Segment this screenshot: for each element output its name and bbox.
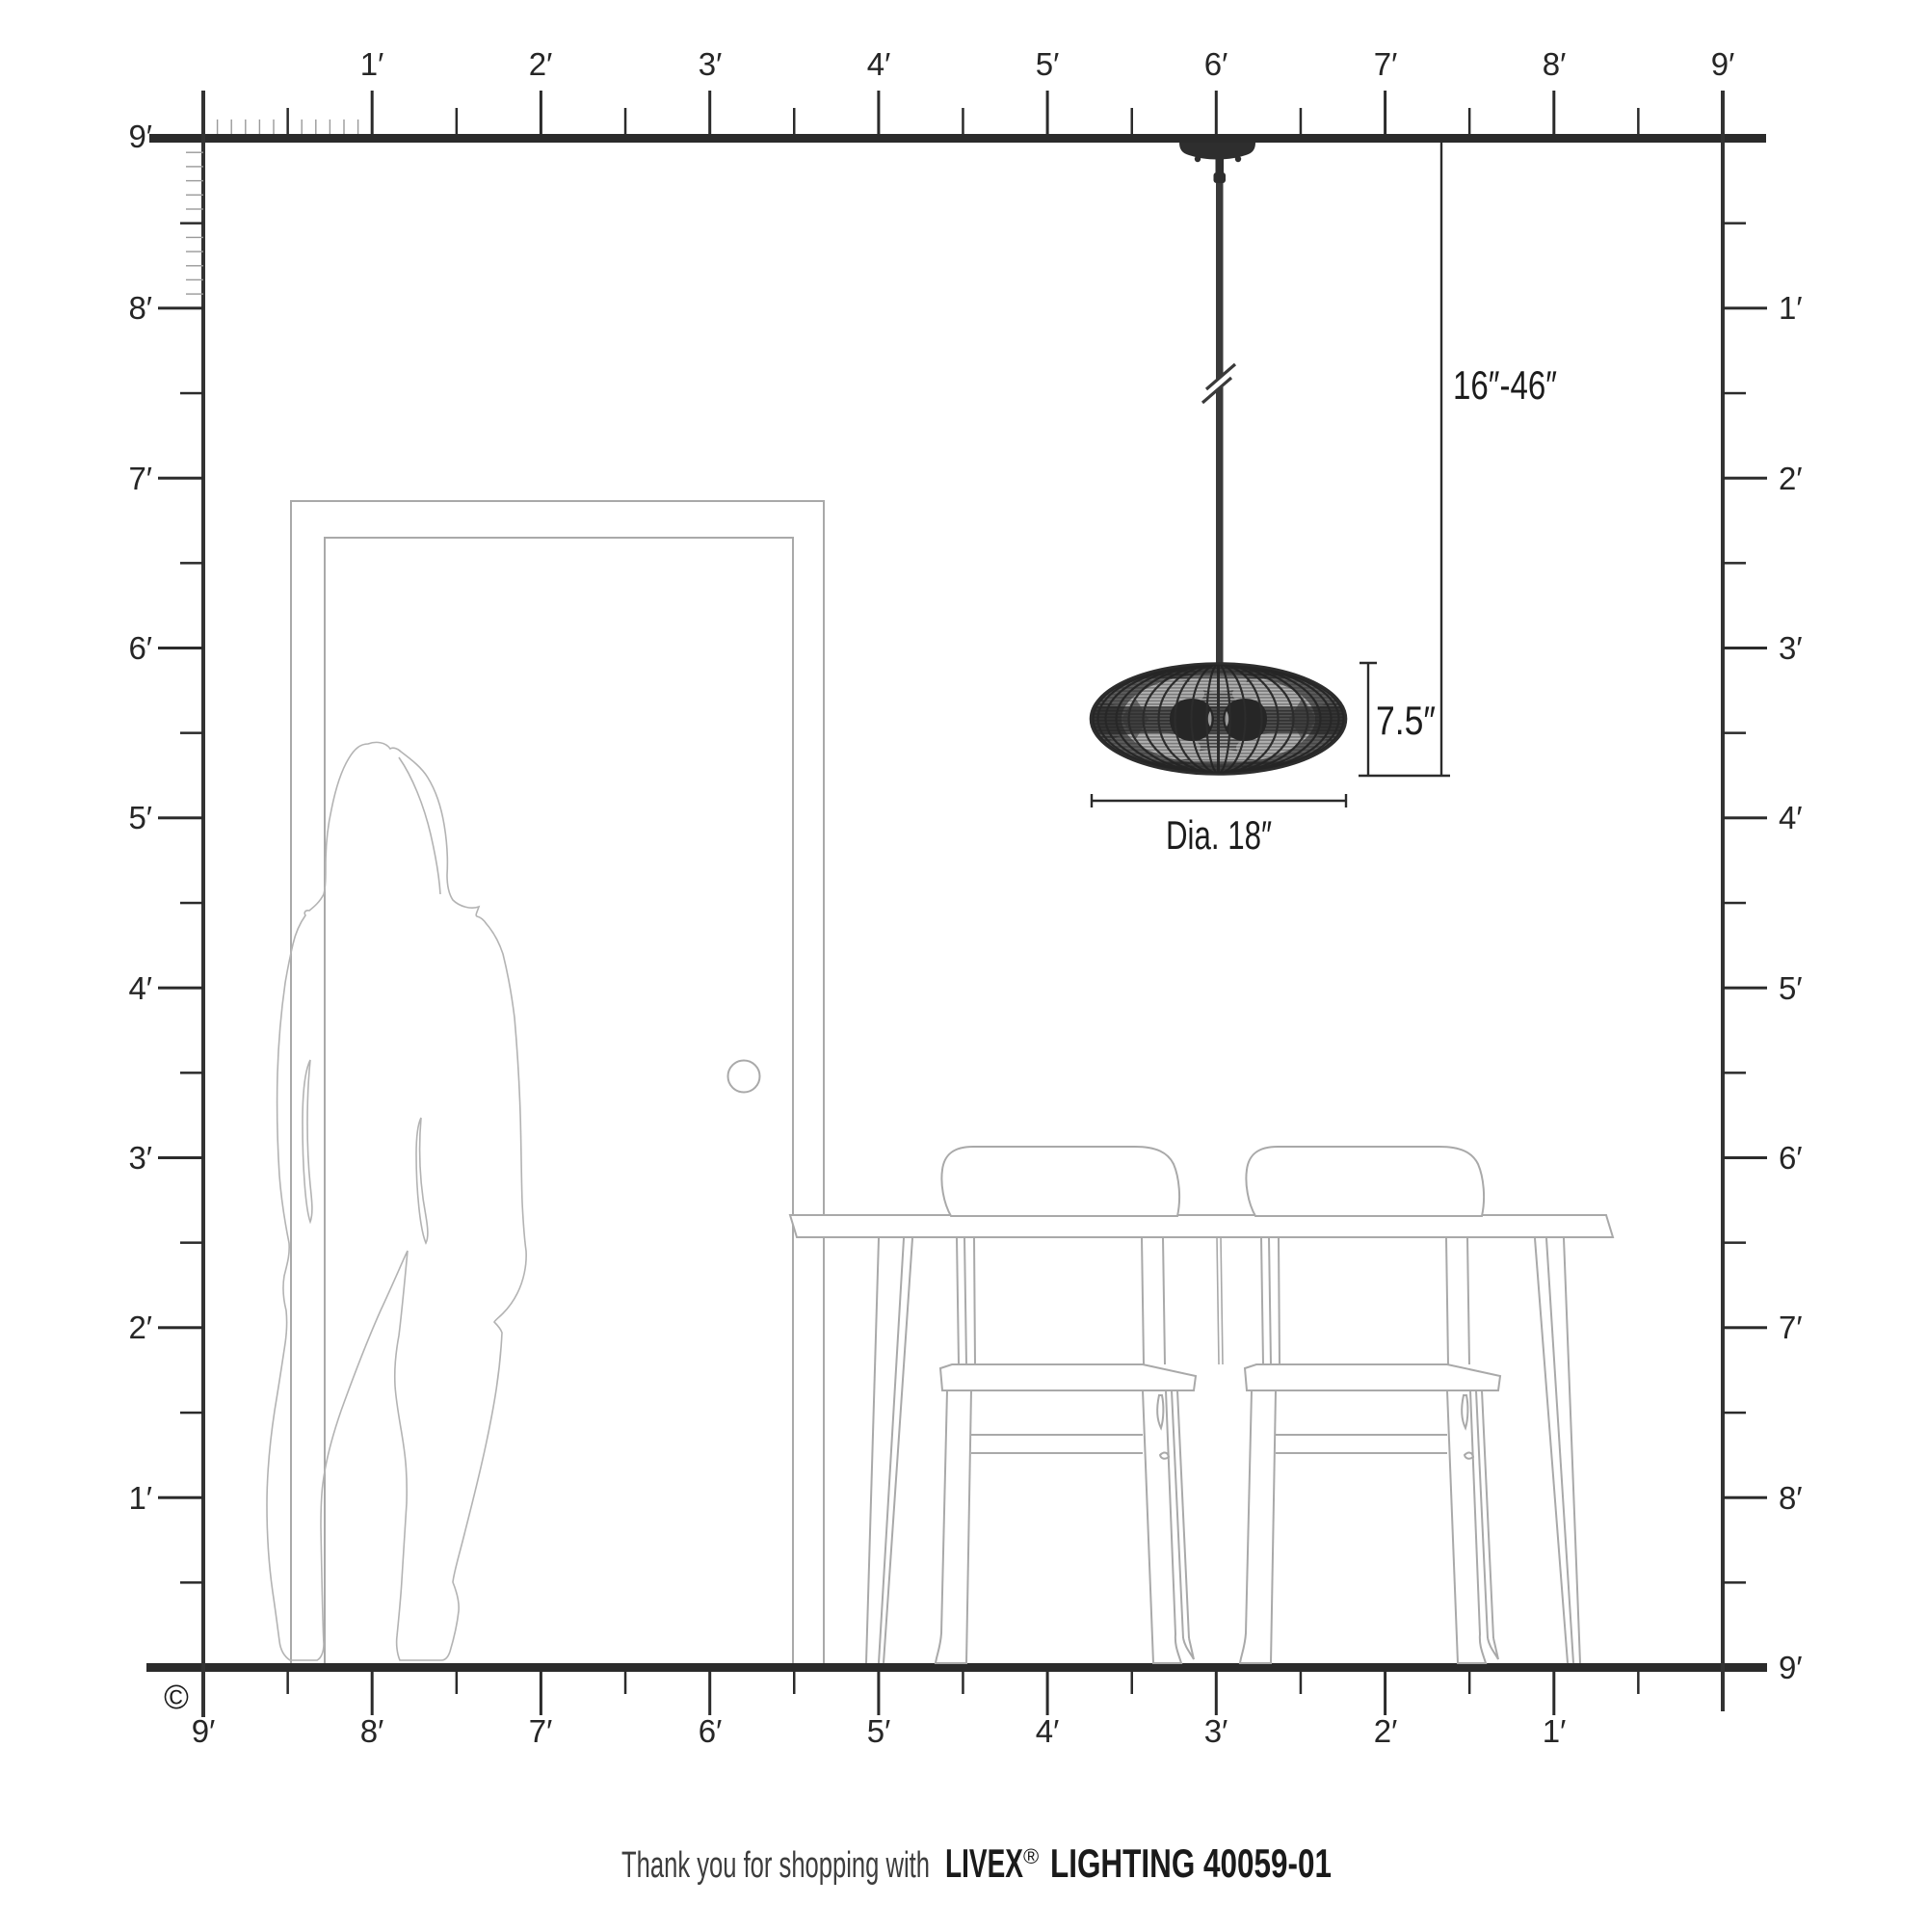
svg-text:5′: 5′ xyxy=(867,1713,891,1749)
svg-text:8′: 8′ xyxy=(1543,46,1567,82)
svg-text:4′: 4′ xyxy=(867,46,891,82)
svg-text:6′: 6′ xyxy=(128,630,152,666)
svg-text:Thank you for shopping with: Thank you for shopping with xyxy=(621,1845,930,1886)
svg-text:7′: 7′ xyxy=(1779,1310,1803,1345)
svg-text:8′: 8′ xyxy=(360,1713,384,1749)
svg-text:8′: 8′ xyxy=(1779,1480,1803,1516)
svg-text:6′: 6′ xyxy=(699,1713,723,1749)
svg-text:1′: 1′ xyxy=(1543,1713,1567,1749)
svg-text:1′: 1′ xyxy=(360,46,384,82)
svg-text:2′: 2′ xyxy=(128,1310,152,1345)
svg-text:3′: 3′ xyxy=(128,1140,152,1176)
svg-text:5′: 5′ xyxy=(1779,970,1803,1006)
svg-text:9′: 9′ xyxy=(128,119,152,154)
svg-text:9′: 9′ xyxy=(1711,46,1735,82)
svg-text:®: ® xyxy=(1023,1844,1039,1868)
svg-text:4′: 4′ xyxy=(1036,1713,1060,1749)
svg-text:7′: 7′ xyxy=(1374,46,1398,82)
svg-text:6′: 6′ xyxy=(1779,1140,1803,1176)
svg-text:16″-46″: 16″-46″ xyxy=(1453,362,1557,408)
svg-text:1′: 1′ xyxy=(1779,290,1803,326)
svg-text:4′: 4′ xyxy=(1779,800,1803,835)
svg-text:2′: 2′ xyxy=(1779,461,1803,496)
svg-text:8′: 8′ xyxy=(128,290,152,326)
svg-text:5′: 5′ xyxy=(1036,46,1060,82)
svg-text:7′: 7′ xyxy=(128,461,152,496)
svg-text:6′: 6′ xyxy=(1204,46,1228,82)
svg-text:5′: 5′ xyxy=(128,800,152,835)
svg-text:4′: 4′ xyxy=(128,970,152,1006)
svg-text:2′: 2′ xyxy=(529,46,553,82)
svg-text:1′: 1′ xyxy=(128,1480,152,1516)
svg-text:3′: 3′ xyxy=(1204,1713,1228,1749)
svg-text:3′: 3′ xyxy=(1779,630,1803,666)
svg-text:7′: 7′ xyxy=(529,1713,553,1749)
svg-text:Dia. 18″: Dia. 18″ xyxy=(1166,812,1272,858)
svg-text:3′: 3′ xyxy=(699,46,723,82)
svg-text:LIGHTING 40059-01: LIGHTING 40059-01 xyxy=(1050,1840,1332,1886)
svg-text:©: © xyxy=(164,1679,189,1716)
svg-text:7.5″: 7.5″ xyxy=(1376,698,1436,743)
svg-text:9′: 9′ xyxy=(1779,1650,1803,1685)
svg-text:9′: 9′ xyxy=(192,1713,216,1749)
svg-text:LIVEX: LIVEX xyxy=(945,1840,1023,1886)
svg-text:2′: 2′ xyxy=(1374,1713,1398,1749)
